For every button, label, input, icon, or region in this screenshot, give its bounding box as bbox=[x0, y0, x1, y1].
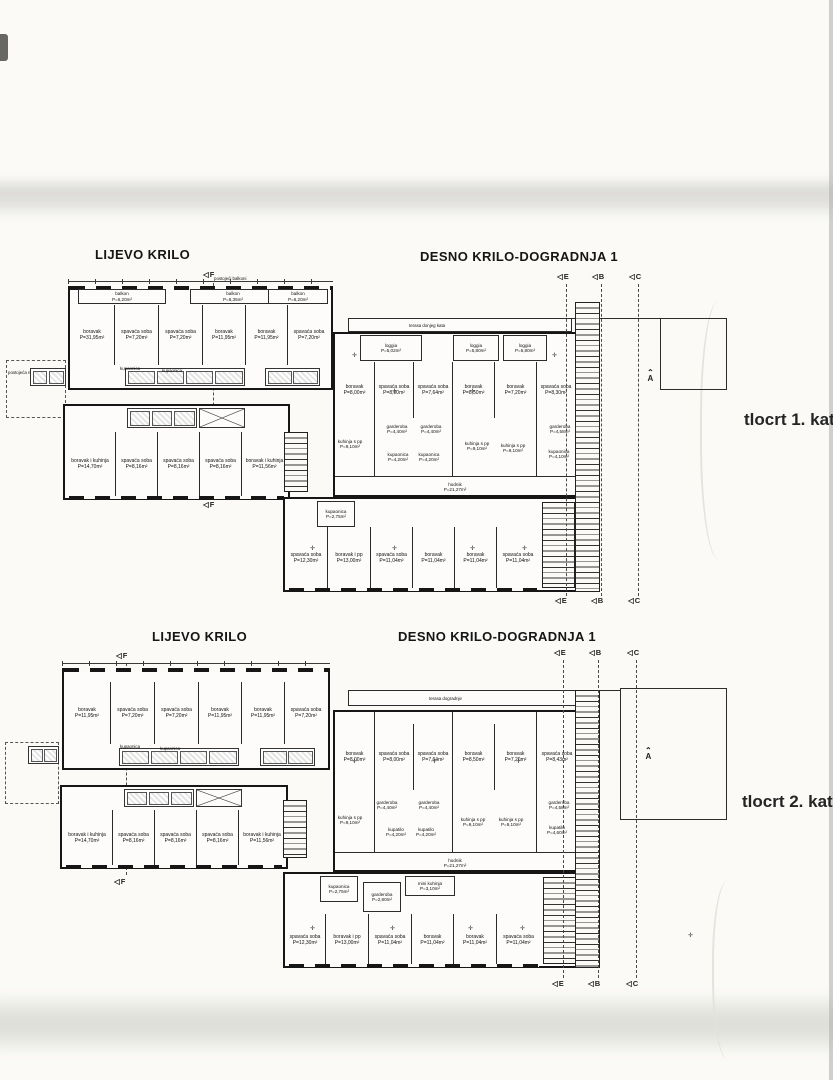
room: spavaća sobaP=7,20m² bbox=[287, 305, 330, 365]
bath-fixture bbox=[186, 371, 214, 384]
level-mark: ✛ bbox=[390, 925, 395, 932]
room-area: P=12,30m² bbox=[294, 558, 319, 564]
room-area: P=4,60m² bbox=[547, 830, 567, 835]
plan2-right-wing-block: boravakP=8,00m²spavaća sobaP=8,00m²spava… bbox=[333, 710, 580, 872]
room: boravakP=11,04m² bbox=[412, 527, 454, 589]
window-band bbox=[64, 668, 328, 672]
plan1-left-wing-rooms-bottom: boravak i kuhinjaP=14,70m²spavaća sobaP=… bbox=[65, 432, 287, 496]
room-area: P=7,20m² bbox=[126, 335, 148, 341]
bath-label: kupaonica bbox=[160, 746, 180, 752]
room: garderobaP=4,58m² bbox=[542, 798, 576, 812]
bath-fixture bbox=[31, 749, 43, 762]
plan2-terrace: terasa dogradnje bbox=[348, 690, 596, 706]
room: kupaonicaP=4,20m² bbox=[413, 450, 445, 464]
wall-line bbox=[452, 418, 453, 476]
room-area: P=14,70m² bbox=[75, 838, 100, 844]
room: spavaća sobaP=7,20m² bbox=[154, 682, 198, 744]
plan2-right-wing-bottom-block: kupaonicaP=2,75m² garderobaP=2,80m² mini… bbox=[283, 872, 580, 968]
plan2-grid-marker-c-bottom: ◁C bbox=[626, 979, 638, 988]
bath-fixture bbox=[174, 411, 195, 426]
wall-line bbox=[374, 418, 375, 476]
bath-fixture bbox=[215, 371, 243, 384]
bath-label: kupaonica bbox=[120, 366, 140, 372]
shaft bbox=[199, 408, 245, 428]
plan1-section-marker-a: ⌃A bbox=[647, 370, 654, 382]
room-area: P=11,04m² bbox=[506, 558, 530, 564]
room: boravakP=8,00m² bbox=[335, 362, 374, 418]
room: spavaća sobaP=11,04m² bbox=[496, 527, 539, 589]
room: kuhinja s ppP=9,10m² bbox=[333, 812, 367, 828]
room: boravakP=11,04m² bbox=[453, 914, 496, 965]
wall-line bbox=[536, 418, 537, 476]
room-area: P=9,10m² bbox=[501, 822, 521, 827]
room-area: P=11,95m² bbox=[212, 335, 236, 341]
room: garderobaP=4,40m² bbox=[414, 422, 448, 436]
bath-fixture bbox=[152, 411, 173, 426]
room: spavaća sobaP=7,20m² bbox=[114, 305, 158, 365]
stairs bbox=[542, 502, 575, 588]
mini-kitchen: mini kuhinjaP=3,10m² bbox=[405, 876, 455, 896]
room: spavaća sobaP=7,64m² bbox=[413, 362, 452, 418]
stairs bbox=[543, 877, 576, 964]
room-area: P=11,04m² bbox=[463, 558, 487, 564]
room-area: P=5,02m² bbox=[381, 348, 401, 353]
plan2-caption: tlocrt 2. kata bbox=[742, 792, 833, 812]
section-tag-icon: ◁ bbox=[628, 596, 634, 605]
level-mark: ✛ bbox=[516, 758, 521, 765]
plan1-grid-marker-e-bottom: ◁E bbox=[555, 596, 567, 605]
bath-fixture bbox=[44, 749, 56, 762]
room-area: P=7,20m² bbox=[170, 335, 192, 341]
plan2-left-wing-lower-block: boravak i kuhinjaP=14,70m²spavaća sobaP=… bbox=[60, 785, 288, 869]
room: boravakP=11,95m² bbox=[202, 305, 245, 365]
room: boravakP=31,95m² bbox=[70, 305, 114, 365]
bath-fixture bbox=[128, 371, 156, 384]
room: spavaća sobaP=8,00m² bbox=[374, 724, 413, 790]
room-area: P=11,95m² bbox=[251, 713, 275, 719]
plan1-grid-axis-e bbox=[566, 284, 567, 596]
plan2-grid-marker-e-top: ◁E bbox=[554, 648, 566, 657]
loggia: loggiaP=5,80m² bbox=[453, 335, 499, 361]
room-area: P=8,00m² bbox=[344, 390, 366, 396]
plan2-grid-marker-c-top: ◁C bbox=[627, 648, 639, 657]
room: spavaća sobaP=8,30m² bbox=[536, 362, 575, 418]
room: garderobaP=4,40m² bbox=[380, 422, 414, 436]
wall-line bbox=[452, 712, 453, 724]
plan2-grid-marker-e-bottom: ◁E bbox=[552, 979, 564, 988]
room-area: P=8,16m² bbox=[165, 838, 187, 844]
plan1-grid-axis-c bbox=[638, 284, 639, 596]
bath-fixture-strip bbox=[30, 368, 66, 386]
level-mark: ✛ bbox=[520, 925, 525, 932]
level-mark: ✛ bbox=[470, 388, 475, 395]
room-area: P=7,20m² bbox=[122, 713, 144, 719]
bath-fixture bbox=[151, 751, 179, 764]
room-area: P=5,80m² bbox=[466, 348, 486, 353]
shaft bbox=[196, 789, 242, 807]
plan1-left-wing-lower-block: boravak i kuhinjaP=14,70m²spavaća sobaP=… bbox=[63, 404, 290, 500]
scan-edge-line bbox=[829, 0, 833, 1080]
room: boravakP=11,95m² bbox=[241, 682, 284, 744]
room: spavaća sobaP=8,16m² bbox=[199, 432, 241, 496]
balcony: balkonP=6,35m² bbox=[190, 289, 276, 304]
bath-label: kupaonica bbox=[162, 368, 182, 374]
room: garderobaP=4,40m² bbox=[370, 798, 404, 812]
plan1-right-wing-rooms-bottom: spavaća sobaP=12,30m²boravak i ppP=13,00… bbox=[285, 527, 539, 589]
room-area: P=8,16m² bbox=[126, 464, 148, 470]
room: spavaća sobaP=11,04m² bbox=[368, 914, 411, 965]
room-area: P=21,27m² bbox=[444, 487, 467, 492]
room: spavaća sobaP=8,16m² bbox=[112, 810, 154, 865]
room: kuhinja s ppP=9,10m² bbox=[496, 440, 530, 456]
bath-fixture bbox=[130, 411, 151, 426]
wall-line bbox=[536, 790, 537, 852]
section-tag-icon: ◁ bbox=[629, 272, 635, 281]
section-tag-icon: ◁ bbox=[555, 596, 561, 605]
section-tag-icon: ◁ bbox=[203, 500, 209, 509]
plan1-left-wing-rooms-top: boravakP=31,95m²spavaća sobaP=7,20m²spav… bbox=[70, 305, 330, 365]
room: spavaća sobaP=11,04m² bbox=[496, 914, 540, 965]
plan2-stairwell bbox=[283, 800, 307, 858]
scanned-floor-plan-page: LIJEVO KRILO DESNO KRILO-DOGRADNJA 1 tlo… bbox=[0, 0, 833, 1080]
room: kupaonicaP=4,20m² bbox=[382, 450, 414, 464]
window-band bbox=[289, 964, 539, 968]
room-area: P=11,04m² bbox=[420, 940, 444, 946]
room-area: P=11,95m² bbox=[254, 335, 278, 341]
small-bath: kupaonicaP=2,75m² bbox=[317, 501, 355, 527]
room: spavaća sobaP=8,16m² bbox=[157, 432, 199, 496]
plan1-right-wing-rooms-top: boravakP=8,00m²spavaća sobaP=8,00m²spava… bbox=[335, 362, 575, 418]
plan1-grid-axis-b bbox=[601, 284, 602, 596]
plan1-grid-marker-e-top: ◁E bbox=[557, 272, 569, 281]
room-area: P=9,10m² bbox=[340, 444, 360, 449]
room-area: P=21,27m² bbox=[444, 863, 467, 868]
room: garderobaP=4,40m² bbox=[412, 798, 446, 812]
room: boravak i kuhinjaP=11,56m² bbox=[238, 810, 285, 865]
bath-fixture bbox=[209, 751, 237, 764]
bath-fixture bbox=[33, 371, 48, 384]
bath-fixture bbox=[122, 751, 150, 764]
section-tag-icon: ◁ bbox=[592, 272, 598, 281]
loggia: loggiaP=5,80m² bbox=[503, 335, 547, 361]
room-area: P=11,04m² bbox=[379, 558, 403, 564]
room-area: P=4,40m² bbox=[387, 429, 407, 434]
room-area: P=4,20m² bbox=[419, 457, 439, 462]
room: kuhinja s ppP=9,10m² bbox=[494, 814, 528, 830]
plan1-grid-marker-c-bottom: ◁C bbox=[628, 596, 640, 605]
room: spavaća sobaP=11,04m² bbox=[370, 527, 412, 589]
window-band bbox=[69, 496, 284, 500]
room: boravak i ppP=13,00m² bbox=[325, 914, 368, 965]
bath-fixture bbox=[268, 371, 292, 384]
room-area: P=7,20m² bbox=[505, 390, 527, 396]
room-area: P=11,04m² bbox=[378, 940, 402, 946]
room: boravak i kuhinjaP=11,56m² bbox=[241, 432, 287, 496]
level-mark: ✛ bbox=[310, 545, 315, 552]
section-tag-icon: ◁ bbox=[554, 648, 560, 657]
room-area: P=4,20m² bbox=[416, 832, 436, 837]
room: kupaonicaP=4,10m² bbox=[542, 447, 576, 461]
room-area: P=11,04m² bbox=[421, 558, 445, 564]
plan2-grid-marker-b-top: ◁B bbox=[589, 648, 601, 657]
plan1-caption: tlocrt 1. kata bbox=[744, 410, 833, 430]
scan-smudge-bottom bbox=[0, 1004, 833, 1044]
room-area: P=8,43m² bbox=[546, 757, 568, 763]
room-area: P=11,04m² bbox=[463, 940, 487, 946]
wall-line bbox=[374, 712, 375, 724]
paper-crease bbox=[712, 880, 748, 1060]
room-area: P=11,95m² bbox=[208, 713, 232, 719]
plan1-right-wing-bottom-block: kupaonicaP=2,75m² spavaća sobaP=12,30m²b… bbox=[283, 497, 578, 592]
level-mark: ✛ bbox=[352, 352, 357, 359]
section-tag-icon: ◁ bbox=[114, 877, 120, 886]
level-mark: ✛ bbox=[392, 545, 397, 552]
room: boravakP=11,95m² bbox=[64, 682, 110, 744]
plan2-right-wing-title: DESNO KRILO-DOGRADNJA 1 bbox=[398, 629, 596, 644]
level-mark: ✛ bbox=[310, 925, 315, 932]
room: boravakP=7,20m² bbox=[494, 362, 536, 418]
room: kuhinja s ppP=9,10m² bbox=[460, 438, 494, 454]
plan2-grid-axis-b bbox=[598, 660, 599, 978]
section-tag-icon: ◁ bbox=[627, 648, 633, 657]
section-tag-icon: ◁ bbox=[557, 272, 563, 281]
plan1-grid-marker-b-top: ◁B bbox=[592, 272, 604, 281]
section-tag-icon: ◁ bbox=[591, 596, 597, 605]
plan2-grid-marker-b-bottom: ◁B bbox=[588, 979, 600, 988]
plan2-external-staircase bbox=[575, 690, 600, 968]
plan2-left-wing-block: boravakP=11,95m²spavaća sobaP=7,20m²spav… bbox=[62, 668, 330, 770]
room: spavaća sobaP=7,20m² bbox=[110, 682, 154, 744]
room-area: P=11,56m² bbox=[252, 464, 276, 470]
small-bath: kupaonicaP=2,75m² bbox=[320, 876, 358, 902]
plan2-grid-axis-e bbox=[563, 660, 564, 978]
bath-fixture-strip bbox=[127, 408, 197, 428]
room: boravak i ppP=13,00m² bbox=[327, 527, 370, 589]
room-area: P=13,00m² bbox=[335, 940, 360, 946]
bath-fixture bbox=[127, 792, 148, 805]
plan1-corridor: hodnikP=21,27m² bbox=[395, 478, 515, 496]
section-tag-icon: ◁ bbox=[203, 270, 209, 279]
room: boravakP=8,50m² bbox=[452, 724, 494, 790]
wardrobe: garderobaP=2,80m² bbox=[363, 882, 401, 912]
bath-fixture bbox=[293, 371, 317, 384]
room-area: P=3,10m² bbox=[420, 886, 440, 891]
plan1-terrace-label: terasa donjeg kata bbox=[409, 323, 445, 329]
room: spavaća sobaP=7,20m² bbox=[284, 682, 327, 744]
room-area: P=7,64m² bbox=[422, 390, 444, 396]
room: kupatiloP=4,60m² bbox=[540, 823, 574, 837]
room-area: P=14,70m² bbox=[78, 464, 103, 470]
plan1-terrace: terasa donjeg kata bbox=[348, 318, 572, 332]
balcony: balkonP=6,20m² bbox=[268, 289, 328, 304]
plan2-grid-marker-f-top: ◁F bbox=[116, 651, 127, 660]
level-mark: ✛ bbox=[352, 758, 357, 765]
room-area: P=8,16m² bbox=[168, 464, 190, 470]
level-mark: ✛ bbox=[392, 388, 397, 395]
room-area: P=5,80m² bbox=[515, 348, 535, 353]
plan1-external-staircase bbox=[575, 302, 600, 592]
room-area: P=6,35m² bbox=[223, 297, 243, 302]
room-area: P=8,50m² bbox=[463, 757, 485, 763]
plan1-grid-marker-c-top: ◁C bbox=[629, 272, 641, 281]
room-area: P=9,10m² bbox=[503, 448, 523, 453]
plan2-right-wing-rooms-bottom: spavaća sobaP=12,30m²boravak i ppP=13,00… bbox=[285, 914, 540, 965]
room-area: P=31,95m² bbox=[80, 335, 105, 341]
room-area: P=8,16m² bbox=[210, 464, 232, 470]
room-area: P=2,80m² bbox=[372, 897, 392, 902]
room: boravak i kuhinjaP=14,70m² bbox=[62, 810, 112, 865]
room-area: P=2,75m² bbox=[326, 514, 346, 519]
section-tag-icon: ◁ bbox=[552, 979, 558, 988]
room-area: P=11,56m² bbox=[250, 838, 274, 844]
level-mark: ✛ bbox=[552, 352, 557, 359]
room: spavaća sobaP=8,16m² bbox=[196, 810, 238, 865]
room-area: P=8,16m² bbox=[207, 838, 229, 844]
loggia: loggiaP=5,02m² bbox=[360, 335, 422, 361]
bath-fixture-strip bbox=[125, 368, 245, 386]
plan1-left-wing-title: LIJEVO KRILO bbox=[95, 247, 190, 262]
room-area: P=2,75m² bbox=[329, 889, 349, 894]
room: boravakP=7,20m² bbox=[494, 724, 536, 790]
room: spavaća sobaP=12,30m² bbox=[285, 527, 327, 589]
scan-corner-mark bbox=[0, 34, 8, 61]
bath-fixture bbox=[149, 792, 170, 805]
window-band bbox=[289, 588, 537, 592]
room-area: P=9,10m² bbox=[340, 820, 360, 825]
plan2-left-wing-rooms-top: boravakP=11,95m²spavaća sobaP=7,20m²spav… bbox=[64, 682, 327, 744]
room: boravakP=11,95m² bbox=[198, 682, 241, 744]
bath-fixture bbox=[288, 751, 312, 764]
room: boravakP=8,00m² bbox=[335, 724, 374, 790]
room-area: P=9,10m² bbox=[467, 446, 487, 451]
plan2-dimension-line bbox=[62, 661, 330, 666]
plan2-terrace-label: terasa dogradnje bbox=[429, 696, 462, 702]
bath-fixture bbox=[171, 792, 192, 805]
room: kuhinja s ppP=9,10m² bbox=[333, 436, 367, 452]
plan2-grid-marker-f-bottom: ◁F bbox=[114, 877, 125, 886]
room-area: P=11,04m² bbox=[506, 940, 530, 946]
room-area: P=4,58m² bbox=[549, 805, 569, 810]
bath-label: kupaonica bbox=[120, 744, 140, 750]
room-area: P=8,16m² bbox=[123, 838, 145, 844]
plan1-right-wing-block: loggiaP=5,02m² loggiaP=5,80m² loggiaP=5,… bbox=[333, 332, 578, 497]
plan2-right-wing-rooms-top: boravakP=8,00m²spavaća sobaP=8,00m²spava… bbox=[335, 724, 577, 790]
bath-fixture-strip bbox=[265, 368, 320, 386]
room-area: P=4,20m² bbox=[386, 832, 406, 837]
plan1-adjacent-building bbox=[660, 318, 727, 390]
level-mark: ✛ bbox=[432, 758, 437, 765]
plan2-corridor: hodnikP=21,27m² bbox=[395, 854, 515, 872]
bath-fixture-strip bbox=[124, 789, 194, 807]
room: boravakP=11,04m² bbox=[454, 527, 496, 589]
plan1-grid-marker-f-bottom: ◁F bbox=[203, 500, 214, 509]
section-tag-icon: ◁ bbox=[626, 979, 632, 988]
plan1-stairwell bbox=[284, 432, 308, 492]
plan2-section-marker-a: ⌃A bbox=[645, 748, 652, 760]
room-area: P=7,20m² bbox=[298, 335, 320, 341]
room-area: P=4,40m² bbox=[421, 429, 441, 434]
room: boravakP=11,04m² bbox=[411, 914, 453, 965]
level-mark: ✛ bbox=[688, 932, 693, 939]
room: spavaća sobaP=7,64m² bbox=[413, 724, 452, 790]
section-tag-icon: ◁ bbox=[116, 651, 122, 660]
room: spavaća sobaP=12,30m² bbox=[285, 914, 325, 965]
room-area: P=4,58m² bbox=[550, 429, 570, 434]
wall-line bbox=[536, 712, 537, 724]
room: kupatiloP=4,20m² bbox=[380, 825, 412, 839]
room-area: P=12,30m² bbox=[293, 940, 318, 946]
room-area: P=6,20m² bbox=[112, 297, 132, 302]
bath-fixture bbox=[263, 751, 287, 764]
bath-fixture bbox=[180, 751, 208, 764]
room: boravakP=11,95m² bbox=[245, 305, 287, 365]
room-area: P=8,30m² bbox=[545, 390, 567, 396]
room: garderobaP=4,58m² bbox=[543, 422, 577, 436]
room-area: P=8,00m² bbox=[383, 757, 405, 763]
room: spavaća sobaP=7,20m² bbox=[158, 305, 202, 365]
room-area: P=4,20m² bbox=[388, 457, 408, 462]
room-area: P=7,20m² bbox=[295, 713, 317, 719]
room: spavaća sobaP=8,16m² bbox=[115, 432, 157, 496]
bath-fixture-strip bbox=[28, 746, 59, 764]
room-area: P=13,00m² bbox=[337, 558, 362, 564]
level-mark: ✛ bbox=[468, 925, 473, 932]
wall-line bbox=[452, 790, 453, 852]
room-area: P=9,10m² bbox=[463, 822, 483, 827]
plan1-dimension-line bbox=[68, 279, 333, 284]
room: kuhinja s ppP=9,10m² bbox=[456, 814, 490, 830]
bath-fixture-strip bbox=[260, 748, 315, 766]
bath-fixture bbox=[49, 371, 64, 384]
level-mark: ✛ bbox=[470, 545, 475, 552]
section-tag-icon: ◁ bbox=[588, 979, 594, 988]
room: boravak i kuhinjaP=14,70m² bbox=[65, 432, 115, 496]
scan-smudge-top bbox=[0, 184, 833, 212]
balcony: balkonP=6,20m² bbox=[78, 289, 166, 304]
plan1-right-wing-title: DESNO KRILO-DOGRADNJA 1 bbox=[420, 249, 618, 264]
plan2-grid-axis-c bbox=[636, 660, 637, 978]
room-area: P=6,20m² bbox=[288, 297, 308, 302]
section-tag-icon: ◁ bbox=[589, 648, 595, 657]
plan2-left-wing-rooms-bottom: boravak i kuhinjaP=14,70m²spavaća sobaP=… bbox=[62, 810, 285, 865]
room-area: P=4,40m² bbox=[419, 805, 439, 810]
room: spavaća sobaP=8,16m² bbox=[154, 810, 196, 865]
room: kupatiloP=4,20m² bbox=[410, 825, 442, 839]
level-mark: ✛ bbox=[522, 545, 527, 552]
window-band bbox=[66, 865, 282, 869]
room: spavaća sobaP=8,43m² bbox=[536, 724, 577, 790]
plan1-left-wing-block: balkonP=6,20m² balkonP=6,35m² balkonP=6,… bbox=[68, 286, 333, 390]
room-area: P=4,40m² bbox=[377, 805, 397, 810]
plan1-grid-marker-f-top: ◁F bbox=[203, 270, 214, 279]
plan2-left-wing-title: LIJEVO KRILO bbox=[152, 629, 247, 644]
plan1-grid-marker-b-bottom: ◁B bbox=[591, 596, 603, 605]
room-area: P=11,95m² bbox=[75, 713, 99, 719]
room-area: P=7,20m² bbox=[166, 713, 188, 719]
